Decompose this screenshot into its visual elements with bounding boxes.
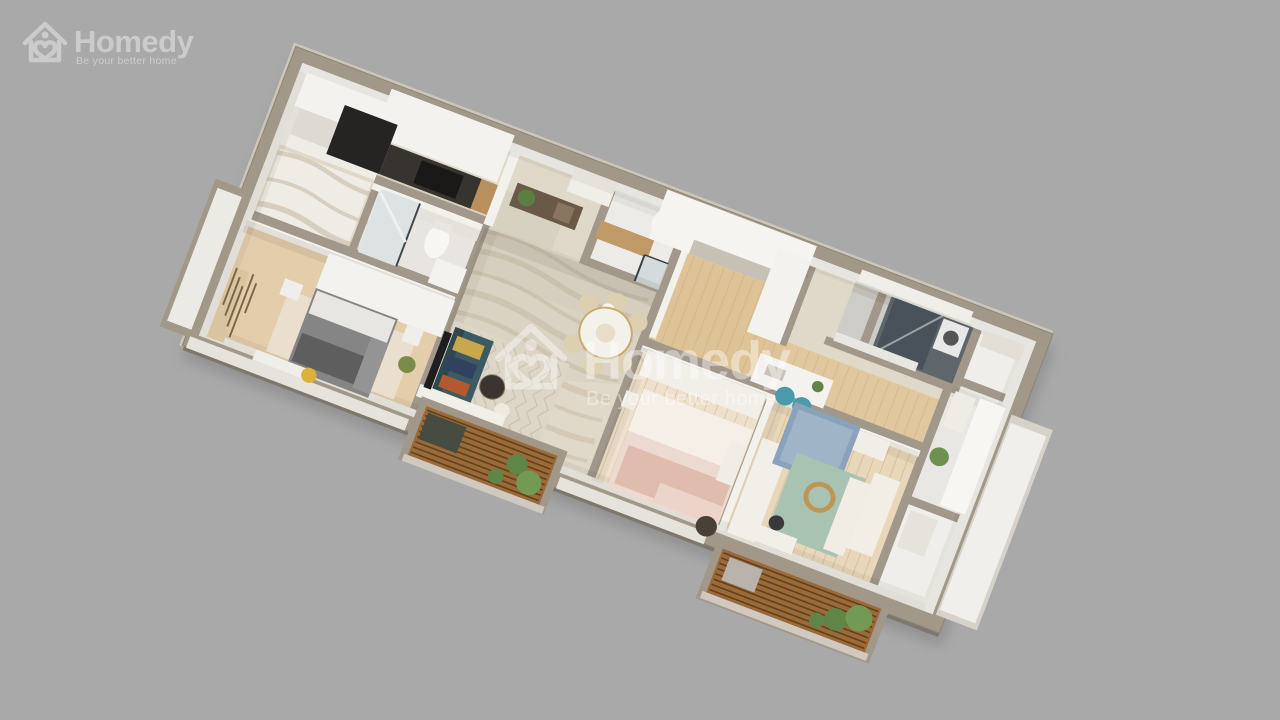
svg-text:Be your better home: Be your better home (586, 388, 777, 410)
svg-text:Homedy: Homedy (583, 331, 791, 391)
svg-text:Be your better home: Be your better home (76, 55, 177, 67)
svg-text:Homedy: Homedy (74, 24, 195, 59)
